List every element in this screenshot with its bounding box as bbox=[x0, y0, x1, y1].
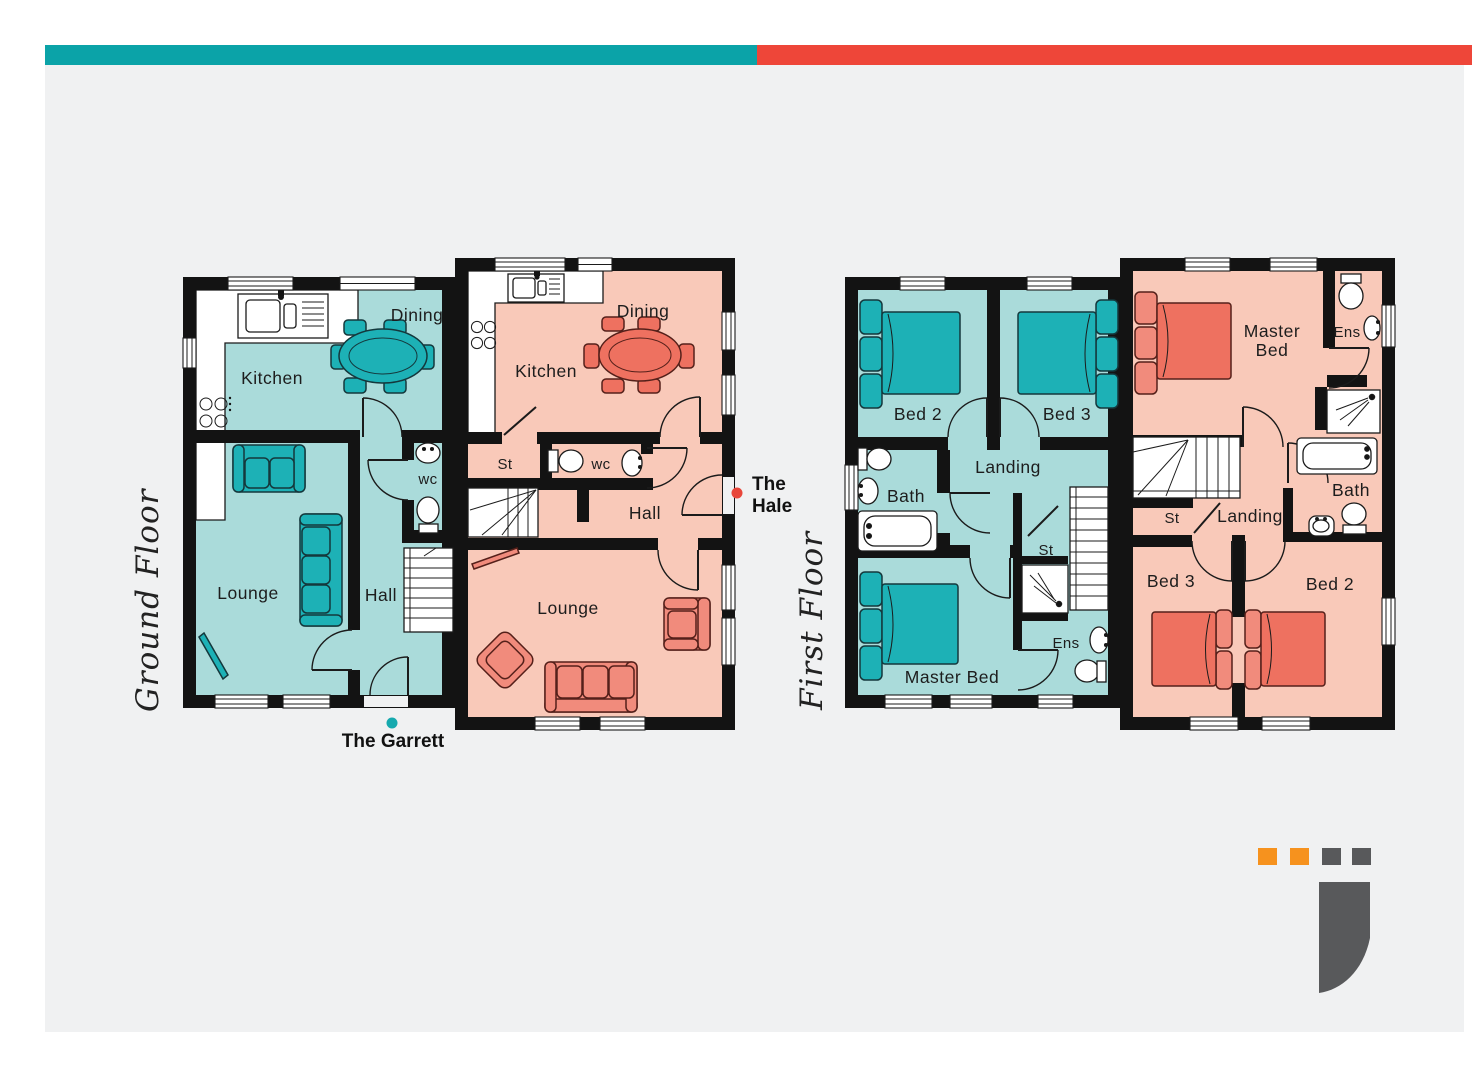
shower-icon bbox=[1327, 390, 1380, 433]
toilet-icon bbox=[417, 497, 439, 523]
sink-icon bbox=[238, 290, 328, 338]
staircase bbox=[1133, 437, 1240, 498]
toilet-icon bbox=[559, 450, 583, 472]
header-bar-red bbox=[757, 45, 1472, 65]
room-label-master-line2: Bed bbox=[1256, 340, 1289, 360]
garrett-marker-dot bbox=[387, 718, 398, 729]
bathtub-icon bbox=[858, 511, 937, 551]
toilet-cistern bbox=[1341, 274, 1361, 283]
logo-square-orange-2 bbox=[1290, 848, 1309, 865]
toilet-cistern bbox=[858, 448, 867, 470]
staircase bbox=[1070, 487, 1108, 610]
logo-square-gray-1 bbox=[1322, 848, 1341, 865]
sofa-icon bbox=[233, 445, 305, 492]
floorplan-canvas: Ground Floor First Floor bbox=[0, 0, 1475, 1080]
floorplan-page: Ground Floor First Floor bbox=[0, 0, 1475, 1080]
hale-name-line1: The bbox=[752, 474, 786, 495]
double-bed-icon bbox=[1135, 292, 1231, 394]
first-floor-plan-garrett: Bed 2 Bed 3 Landing Bath Master Bed St E… bbox=[845, 277, 1120, 708]
front-door-opening bbox=[364, 696, 408, 707]
room-label-dining: Dining bbox=[617, 301, 670, 321]
room-label-bed2: Bed 2 bbox=[894, 404, 942, 424]
sink-icon bbox=[508, 271, 564, 302]
basin-icon bbox=[1364, 316, 1380, 340]
room-label-landing: Landing bbox=[975, 457, 1041, 477]
first-floor-title: First Floor bbox=[794, 530, 830, 711]
toilet-cistern bbox=[1097, 661, 1106, 682]
room-label-wc: wc bbox=[590, 456, 610, 473]
room-label-st: St bbox=[498, 456, 513, 473]
room-label-ens: Ens bbox=[1052, 635, 1079, 652]
room-label-bath: Bath bbox=[887, 486, 925, 506]
room-label-bath: Bath bbox=[1332, 480, 1370, 500]
logo-square-gray-2 bbox=[1352, 848, 1371, 865]
room-label-hall: Hall bbox=[365, 585, 397, 605]
double-bed-icon bbox=[860, 572, 958, 680]
room-label-lounge: Lounge bbox=[537, 598, 598, 618]
basin-icon bbox=[416, 443, 440, 463]
header-bar-teal bbox=[45, 45, 757, 65]
logo-square-orange-1 bbox=[1258, 848, 1277, 865]
toilet-icon bbox=[867, 448, 891, 470]
room-label-kitchen: Kitchen bbox=[241, 368, 303, 388]
garrett-name: The Garrett bbox=[342, 731, 445, 752]
toilet-icon bbox=[1339, 283, 1363, 309]
ground-floor-plan-hale: Kitchen Dining St wc Hall Lounge bbox=[455, 258, 735, 730]
room-label-ens: Ens bbox=[1333, 324, 1360, 341]
room-label-wc: wc bbox=[417, 471, 437, 488]
ground-floor-plan-garrett: Kitchen Dining Lounge Hall wc bbox=[183, 277, 455, 708]
hale-marker-dot bbox=[732, 488, 743, 499]
toilet-icon bbox=[1075, 660, 1099, 682]
first-floor-plan-hale: Master Bed Ens Bath St Landing Bed 3 Bed… bbox=[1120, 258, 1395, 730]
room-label-bed3: Bed 3 bbox=[1147, 571, 1195, 591]
room-label-kitchen: Kitchen bbox=[515, 361, 577, 381]
toilet-icon bbox=[1342, 503, 1366, 525]
sofa-icon bbox=[545, 662, 637, 712]
basin-icon bbox=[622, 450, 642, 476]
room-label-master-line1: Master bbox=[1244, 321, 1300, 341]
room-label-st: St bbox=[1039, 542, 1054, 559]
room-label-hall: Hall bbox=[629, 503, 661, 523]
armchair-icon bbox=[664, 598, 710, 650]
staircase bbox=[404, 548, 453, 632]
hale-name-line2: Hale bbox=[752, 496, 792, 517]
room-label-st: St bbox=[1165, 510, 1180, 527]
basin-icon bbox=[1309, 516, 1334, 536]
room-label-landing: Landing bbox=[1217, 506, 1283, 526]
room-label-bed2: Bed 2 bbox=[1306, 574, 1354, 594]
room-label-bed3: Bed 3 bbox=[1043, 404, 1091, 424]
bathtub-icon bbox=[1297, 438, 1377, 474]
toilet-cistern bbox=[548, 450, 558, 472]
ground-floor-title: Ground Floor bbox=[130, 487, 166, 712]
staircase bbox=[468, 488, 538, 537]
basin-icon bbox=[858, 478, 878, 504]
basin-icon bbox=[1090, 627, 1108, 653]
double-bed-icon bbox=[860, 300, 960, 408]
double-bed-icon bbox=[1018, 300, 1118, 408]
room-label-lounge: Lounge bbox=[217, 583, 278, 603]
sofa-icon bbox=[300, 514, 342, 626]
toilet-cistern bbox=[1343, 525, 1366, 534]
room-label-dining: Dining bbox=[391, 305, 444, 325]
shower-icon bbox=[1022, 565, 1068, 613]
room-label-master: Master Bed bbox=[905, 667, 999, 687]
toilet-cistern bbox=[419, 524, 438, 533]
